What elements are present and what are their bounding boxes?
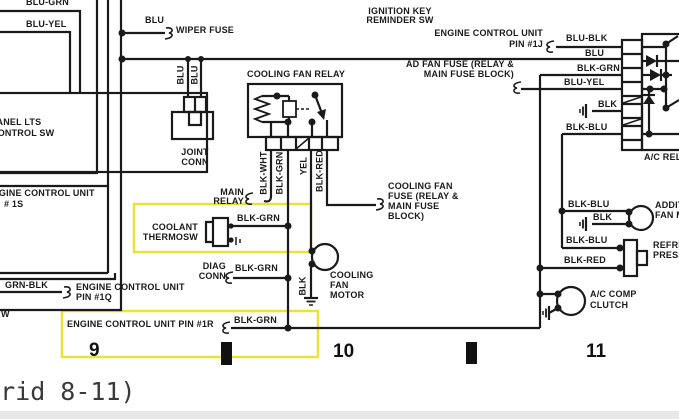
wire-label-blk-grn-v: BLK-GRN: [276, 152, 285, 195]
wire-label-blu-wiper: BLU: [145, 16, 164, 26]
cooling-fan-fuse-label-4: BLOCK): [388, 212, 424, 222]
ac-comp-clutch-label-2: CLUTCH: [590, 301, 628, 311]
wire-label-blk-grn-thermo: BLK-GRN: [237, 214, 280, 224]
wire-label-blu-yel-ac: BLU-YEL: [564, 78, 604, 88]
wire-label-grn-blk: GRN-BLK: [5, 281, 48, 291]
cooling-fan-relay-label: COOLING FAN RELAY: [247, 70, 345, 80]
wire-label-blk-ac: BLK: [598, 100, 617, 110]
grid-number-9: 9: [89, 341, 100, 360]
additional-fan-symbol: [562, 134, 653, 248]
wire-label-blk-red-v: BLK-RED: [316, 150, 325, 192]
ecu-1r-label: ENGINE CONTROL UNIT PIN #1R: [67, 320, 214, 330]
wiring-diagram-page: BLU-GRN BLU-YEL PANEL LTS CONTROL SW ENG…: [0, 0, 679, 419]
panel-lts-label-2: CONTROL SW: [0, 129, 54, 139]
ac-connector-strip: [622, 40, 642, 150]
wire-label-blk-blu-pres: BLK-BLU: [566, 236, 607, 246]
coolant-thermosw-label-2: THERMOSW: [136, 233, 198, 243]
wire-label-blk-motor: BLK: [299, 276, 308, 295]
ad-fan-fuse-label-2: MAIN FUSE BLOCK): [402, 70, 514, 80]
page-caption: (Grid 8-11): [0, 378, 136, 406]
ecu-1j-label-2: PIN #1J: [433, 40, 543, 50]
wire-label-blu-b: BLU: [191, 65, 200, 84]
wire-label-blu-grn: BLU-GRN: [26, 0, 69, 8]
ecu-1q-label-2: PIN #1Q: [76, 293, 112, 303]
wire-label-blk-grn-ac: BLK-GRN: [577, 64, 620, 74]
bottom-strip: [0, 411, 679, 419]
wire-label-blu-r: BLU: [585, 49, 604, 59]
wire-label-blk-blu-ac: BLK-BLU: [566, 123, 607, 133]
label-fragment-w: W: [1, 310, 10, 320]
wire-label-blk-wht: BLK-WHT: [260, 151, 269, 194]
wire-label-blk-fan: BLK: [593, 213, 612, 223]
wire-label-blk-grn-diag: BLK-GRN: [235, 264, 278, 274]
wire-label-blk-blu-fan: BLK-BLU: [568, 200, 609, 210]
ac-comp-clutch-symbol: [540, 287, 585, 320]
ecu-1r-line: [231, 75, 540, 328]
grid-number-10: 10: [333, 342, 354, 361]
grid-number-11: 11: [586, 342, 606, 361]
refrigerant-pressure-label-2: PRESSURE SW: [653, 251, 679, 261]
wire-label-blu-blk: BLU-BLK: [566, 34, 607, 44]
ecu-1s-label-2: # 1S: [4, 200, 23, 210]
wire-label-yel: YEL: [300, 157, 309, 175]
wire-label-blk-red-pres: BLK-RED: [564, 256, 606, 266]
panel-lts-label-1: PANEL LTS: [0, 118, 41, 128]
joint-conn-label-2: CONN: [174, 158, 216, 168]
wire-label-blu-a: BLU: [177, 65, 186, 84]
ecu-1s-label-1: ENGINE CONTROL UNIT: [0, 189, 95, 199]
ignition-label-2: REMINDER SW: [366, 16, 434, 26]
cooling-fan-motor-label-3: MOTOR: [330, 291, 364, 301]
ac-relay-label: A/C RELAY: [644, 153, 679, 163]
wire-label-blk-grn-1r: BLK-GRN: [234, 316, 277, 326]
diag-conn-label-2: CONN: [188, 272, 226, 282]
main-relay-label-2: RELAY: [206, 197, 244, 207]
additional-fan-label-2: FAN MOTOR: [655, 211, 679, 221]
ac-comp-clutch-label-1: A/C COMP: [590, 290, 637, 300]
wiper-fuse-label: WIPER FUSE: [176, 26, 234, 36]
ecu-1j-label-1: ENGINE CONTROL UNIT: [433, 29, 543, 39]
wire-label-blu-yel: BLU-YEL: [26, 20, 66, 30]
